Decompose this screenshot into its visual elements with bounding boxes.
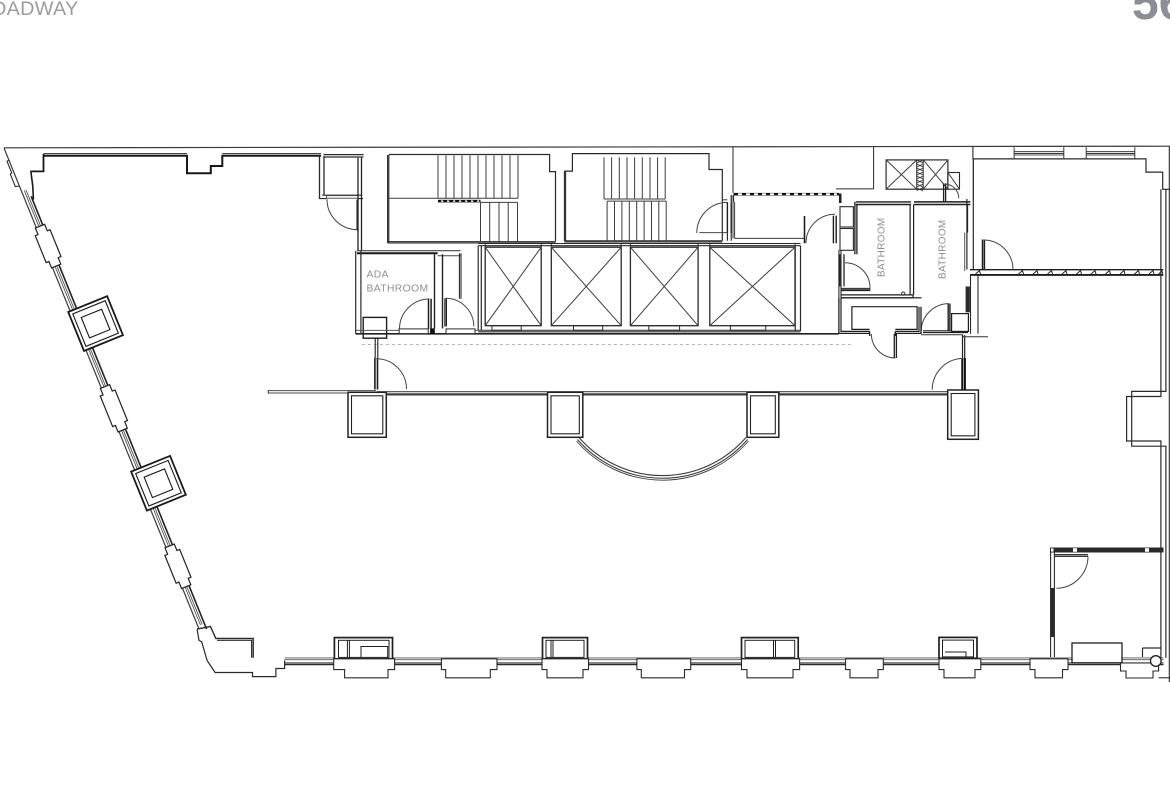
svg-text:BATHROOM: BATHROOM bbox=[938, 219, 949, 279]
svg-text:BATHROOM: BATHROOM bbox=[877, 217, 888, 277]
svg-text:56: 56 bbox=[1132, 0, 1170, 30]
svg-text:BATHROOM: BATHROOM bbox=[367, 284, 429, 295]
svg-text:OADWAY: OADWAY bbox=[0, 0, 79, 20]
svg-text:ADA: ADA bbox=[367, 270, 389, 281]
